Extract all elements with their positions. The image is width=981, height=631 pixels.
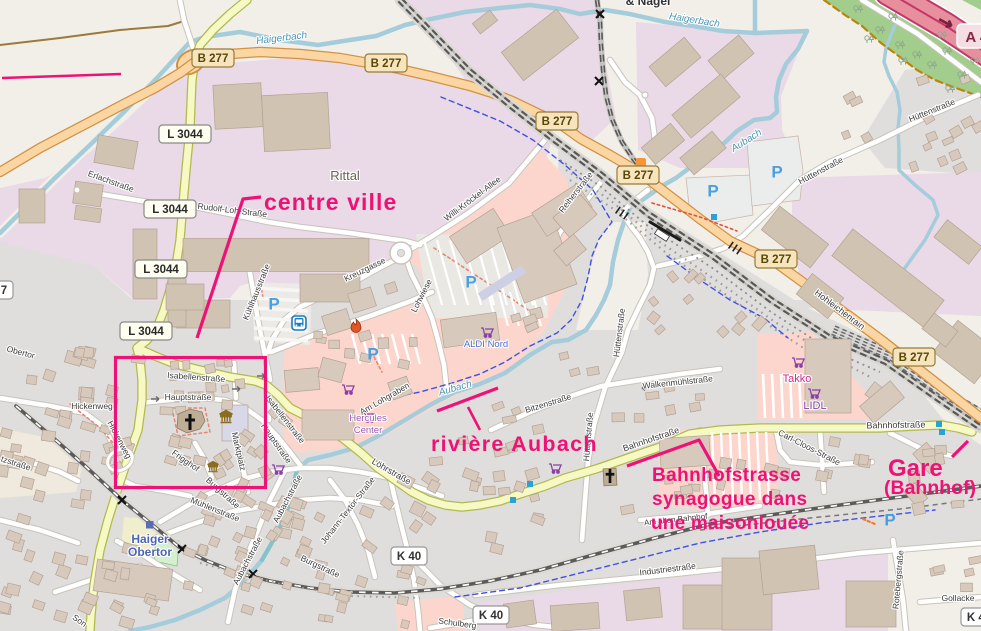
svg-text:P: P [884,510,895,529]
svg-text:Hickenweg: Hickenweg [71,401,113,411]
svg-text:LIDL: LIDL [803,400,826,412]
svg-text:Obertor: Obertor [128,545,172,559]
svg-text:K 40: K 40 [479,610,503,622]
svg-text:B 277: B 277 [761,254,792,266]
svg-text:synagogue dans: synagogue dans [652,489,808,510]
svg-text:K 46: K 46 [967,612,981,624]
svg-text:une maisonlouée: une maisonlouée [651,513,809,534]
svg-text:B 277: B 277 [198,53,229,65]
svg-text:L 3044: L 3044 [167,129,203,141]
svg-text:P: P [268,294,279,313]
svg-text:(Bahnhof): (Bahnhof) [884,477,976,499]
svg-text:B 277: B 277 [623,170,654,182]
svg-text:7: 7 [1,285,7,297]
svg-text:& Nagel: & Nagel [626,0,671,8]
svg-text:B 277: B 277 [899,352,930,364]
svg-text:B 277: B 277 [542,116,573,128]
svg-text:Gollacke: Gollacke [941,593,974,603]
svg-text:P: P [707,181,718,200]
svg-text:Haiger: Haiger [131,532,169,546]
svg-text:P: P [771,162,782,181]
svg-text:L 3044: L 3044 [143,264,179,276]
svg-text:P: P [465,272,476,291]
svg-text:Bahnhofstraße: Bahnhofstraße [866,419,925,430]
svg-text:Rittal: Rittal [330,168,360,183]
svg-text:B 277: B 277 [371,58,402,70]
svg-text:K 40: K 40 [397,551,421,563]
svg-text:Takko: Takko [783,373,812,385]
svg-text:Hauptstraße: Hauptstraße [165,392,212,402]
svg-text:Bahnhofstrasse: Bahnhofstrasse [652,465,801,486]
svg-text:Center: Center [354,425,383,436]
svg-text:P: P [367,344,378,363]
svg-text:L 3044: L 3044 [152,204,188,216]
svg-text:Hercules: Hercules [349,413,387,424]
svg-text:centre ville: centre ville [264,189,397,215]
svg-text:rivière Aubach: rivière Aubach [431,432,598,456]
svg-text:ALDI Nord: ALDI Nord [464,339,508,350]
svg-text:A 45: A 45 [965,29,981,46]
svg-text:L 3044: L 3044 [128,326,164,338]
